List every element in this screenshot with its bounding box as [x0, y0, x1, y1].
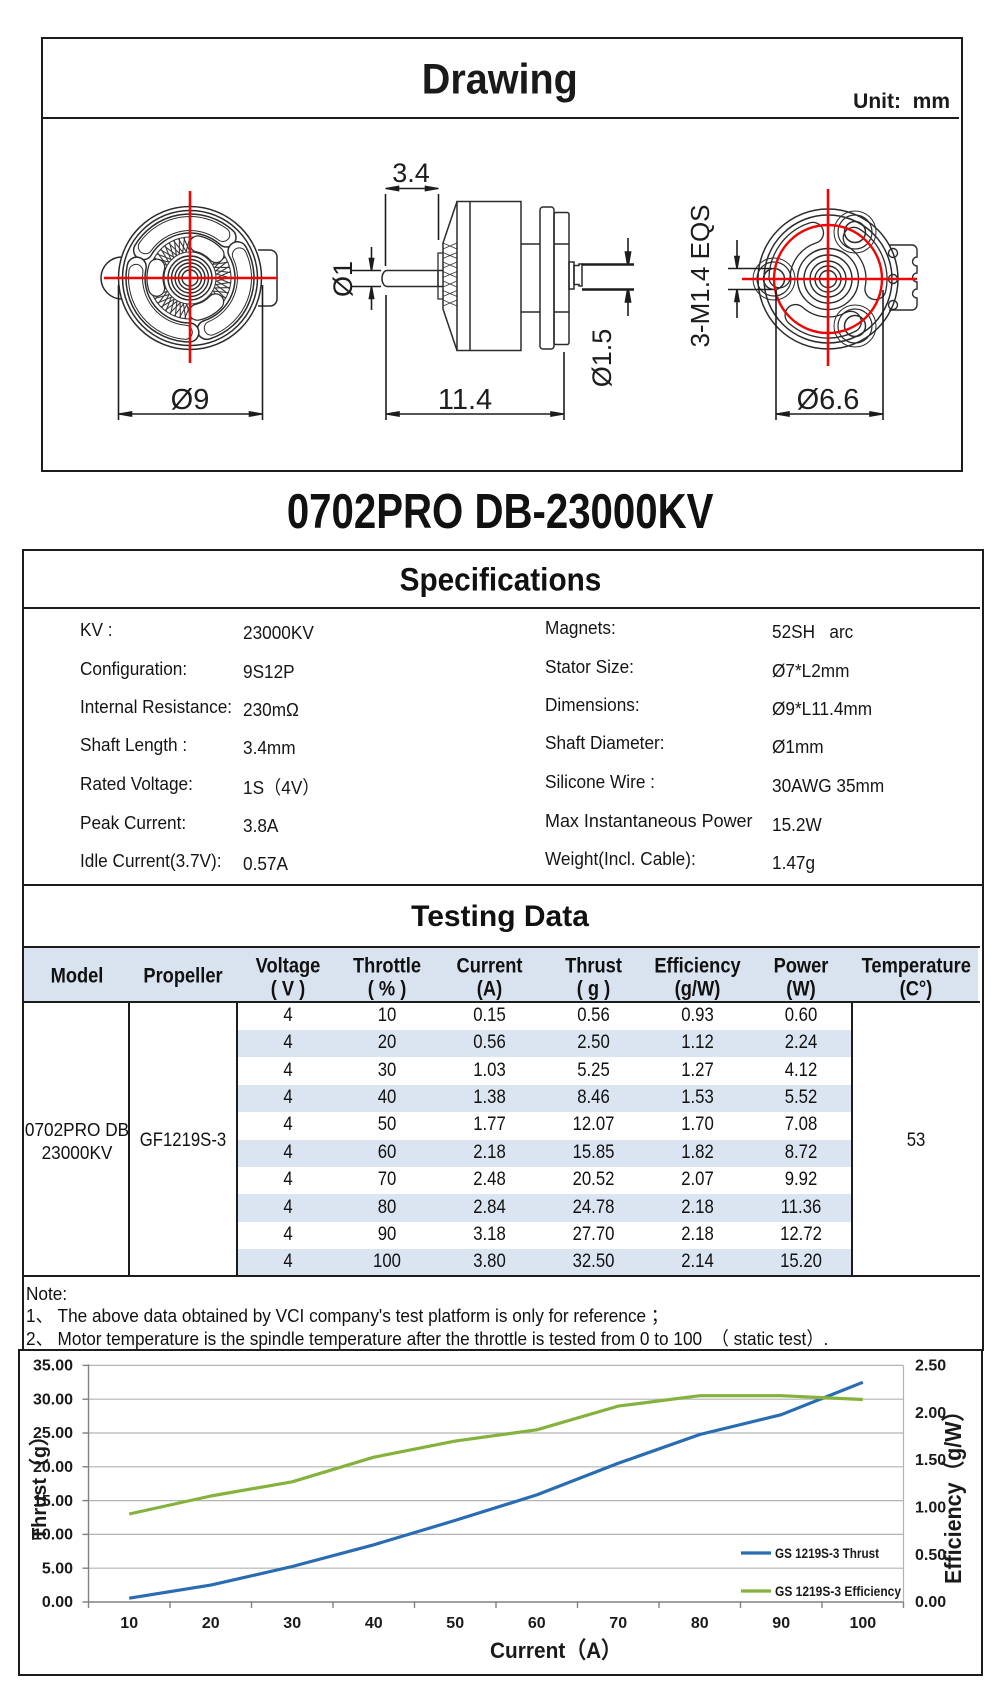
svg-text:Efficiency（g/W）: Efficiency（g/W）: [940, 1400, 966, 1584]
svg-text:Ø1.5: Ø1.5: [587, 329, 617, 388]
svg-text:3.4: 3.4: [392, 158, 430, 188]
svg-text:0.00: 0.00: [42, 1594, 73, 1611]
svg-text:3-M1.4 EQS: 3-M1.4 EQS: [685, 204, 715, 347]
svg-text:35.00: 35.00: [33, 1358, 73, 1375]
svg-text:30.00: 30.00: [33, 1391, 73, 1408]
svg-text:50: 50: [446, 1615, 464, 1632]
svg-text:Current（A）: Current（A）: [490, 1638, 622, 1663]
svg-text:40: 40: [365, 1615, 383, 1632]
svg-text:Thrust（g）: Thrust（g）: [28, 1426, 51, 1540]
svg-text:Ø9: Ø9: [171, 384, 210, 416]
svg-text:5.00: 5.00: [42, 1560, 73, 1577]
svg-text:Ø1: Ø1: [328, 261, 358, 297]
svg-text:GS 1219S-3 Efficiency: GS 1219S-3 Efficiency: [775, 1584, 901, 1599]
svg-text:90: 90: [772, 1615, 790, 1632]
svg-text:GS 1219S-3 Thrust: GS 1219S-3 Thrust: [775, 1546, 879, 1561]
svg-text:30: 30: [283, 1615, 301, 1632]
svg-text:60: 60: [528, 1615, 546, 1632]
svg-text:0.00: 0.00: [915, 1594, 946, 1611]
svg-text:70: 70: [609, 1615, 627, 1632]
svg-text:11.4: 11.4: [438, 384, 492, 416]
svg-text:2.50: 2.50: [915, 1358, 946, 1375]
svg-text:Ø6.6: Ø6.6: [797, 384, 860, 416]
svg-text:100: 100: [849, 1615, 876, 1632]
svg-text:20: 20: [202, 1615, 220, 1632]
svg-text:10: 10: [120, 1615, 138, 1632]
svg-text:80: 80: [691, 1615, 709, 1632]
